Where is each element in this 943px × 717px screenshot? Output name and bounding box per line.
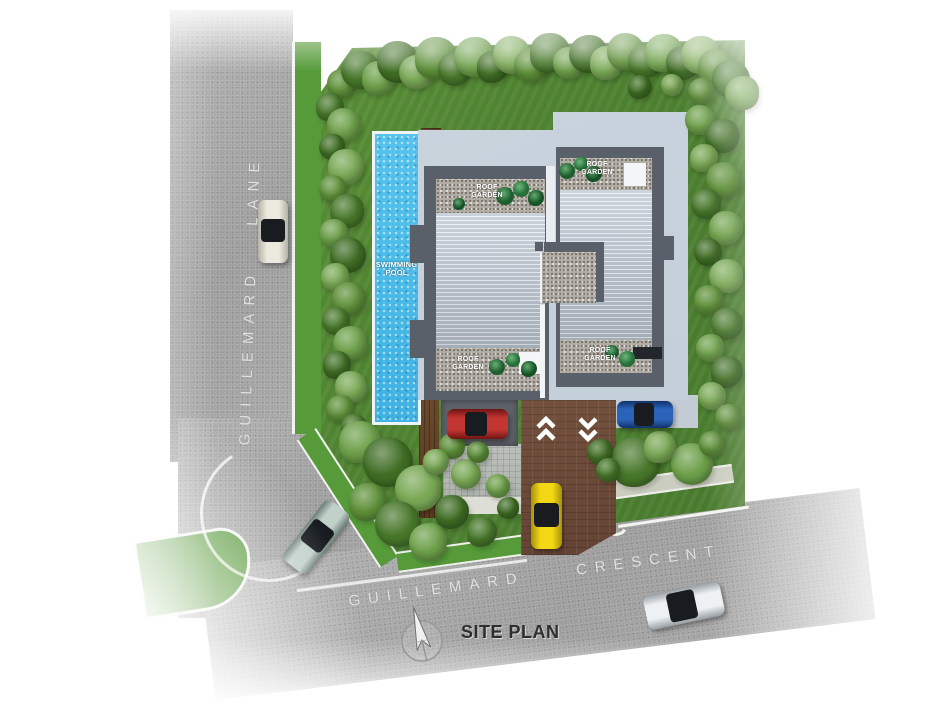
wall-tab-west-1	[410, 225, 424, 263]
roof-garden-label-nw: ROOF GARDEN	[464, 184, 510, 200]
courtyard-wall-top	[544, 242, 604, 252]
car-white-lane	[258, 200, 288, 263]
car-red-parking	[447, 409, 508, 439]
tree	[715, 404, 741, 430]
site-plan-scene: SWIMMING POOL POOL DECK ROOF G	[0, 0, 943, 717]
tree	[596, 458, 620, 482]
vent-south-east	[633, 347, 662, 359]
roof-garden-label-sw: ROOF GARDEN	[446, 356, 490, 372]
courtyard-deck	[540, 252, 596, 303]
tree	[725, 76, 759, 110]
wall-step-east	[658, 236, 674, 260]
tree	[688, 78, 714, 104]
entry-chevron-icon	[535, 416, 557, 442]
car-yellow-driveway	[531, 483, 562, 549]
tree	[661, 74, 683, 96]
tree	[467, 441, 489, 463]
north-arrow-icon	[396, 604, 448, 666]
roof-plant	[513, 181, 529, 197]
roof-garden-label-se: ROOF GARDEN	[578, 347, 622, 363]
swimming-pool-label: SWIMMING POOL	[370, 261, 424, 278]
tree	[699, 431, 725, 457]
courtyard-wall-tab	[535, 242, 543, 251]
exit-chevron-icon	[577, 416, 599, 442]
roof-plant	[506, 353, 520, 367]
site-plan-title: SITE PLAN	[461, 622, 560, 643]
roof-garden-label-ne: ROOF GARDEN	[575, 161, 619, 177]
tree	[497, 497, 519, 519]
tree	[409, 523, 447, 561]
skylight-north-east	[624, 163, 646, 186]
tree	[451, 459, 481, 489]
courtyard-gap-strip	[546, 166, 555, 242]
roof-plant	[489, 359, 505, 375]
swimming-pool: SWIMMING POOL	[372, 131, 421, 425]
roof-plant	[559, 163, 575, 179]
wall-tab-west-2	[410, 320, 424, 358]
west-wing-roof	[436, 213, 545, 348]
car-blue-east	[617, 401, 673, 428]
tree	[486, 474, 510, 498]
